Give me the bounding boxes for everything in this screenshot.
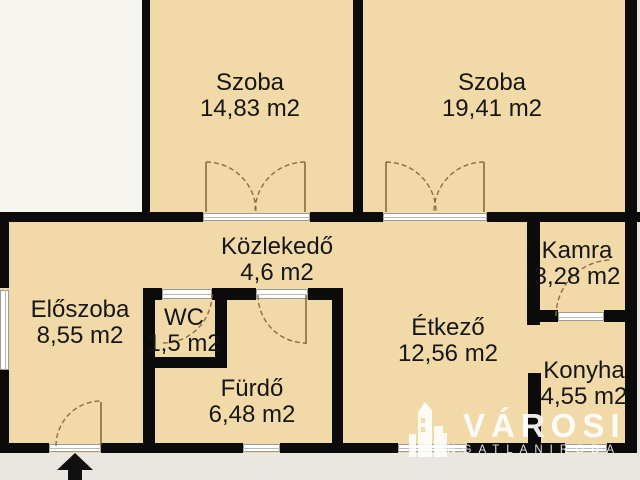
room-label-kozlekedo: Közlekedő 4,6 m2 [221,234,333,286]
door-arc-entrance [56,401,101,446]
wall-furdo-top-a [227,288,256,300]
wall-main-bottom-a [0,443,49,453]
room-name: Kamra [534,238,621,264]
room-area: 12,56 m2 [398,341,498,367]
door-sill-wc [162,289,212,299]
wall-main-bottom-c [280,443,398,453]
wall-exterior-left-lower [0,370,9,453]
room-area: 14,83 m2 [200,96,300,122]
exterior-area-bottom [0,453,640,480]
wall-exterior-left-of-szoba1 [142,0,150,222]
room-area: 19,41 m2 [442,96,542,122]
room-label-szoba1: Szoba 14,83 m2 [200,70,300,122]
door-sill-furdo [256,289,308,299]
wall-kamra-bottom-b [604,310,625,322]
room-area: 3,28 m2 [534,264,621,290]
room-area: 4,6 m2 [221,260,333,286]
floorplan: Szoba 14,83 m2 Szoba 19,41 m2 Közlekedő … [0,0,640,480]
room-name: Közlekedő [221,234,333,260]
room-label-eloszoba: Előszoba 8,55 m2 [31,297,130,349]
room-name: Étkező [398,315,498,341]
wall-furdo-etkezo-divider [332,288,343,445]
wall-exterior-left-upper [0,212,9,288]
room-label-furdo: Fürdő 6,48 m2 [209,376,296,428]
door-sill-entrance [49,444,101,452]
door-sill-kamra [558,312,604,321]
door-sill-szoba1 [203,213,310,221]
wall-wc-bottom [143,357,227,368]
door-arc-szoba1-left [206,162,256,212]
room-label-wc: WC 1,5 m2 [147,305,220,357]
exterior-area-top-left [0,0,142,212]
room-name: Szoba [442,70,542,96]
watermark-brand: VÁROSI [463,407,626,445]
room-name: WC [147,305,220,331]
room-name: Előszoba [31,297,130,323]
room-label-etkezo: Étkező 12,56 m2 [398,315,498,367]
room-name: Fürdő [209,376,296,402]
wall-wc-top-a [143,288,162,300]
room-label-szoba2: Szoba 19,41 m2 [442,70,542,122]
window-eloszoba [0,290,9,370]
room-area: 8,55 m2 [31,323,130,349]
door-arc-furdo [258,295,306,343]
room-name: Szoba [200,70,300,96]
wall-kamra-bottom-a [527,310,558,322]
wall-furdo-top-b [308,288,343,300]
room-area: 1,5 m2 [147,331,220,357]
wall-wc-top-b [212,288,227,300]
wall-main-bottom-b [101,443,243,453]
door-sill-szoba2 [383,213,487,221]
wall-between-szoba-rooms [353,0,363,213]
room-label-konyha: Konyha 4,55 m2 [541,358,628,410]
room-area: 6,48 m2 [209,402,296,428]
door-arc-szoba1-right [255,162,305,212]
door-arc-szoba2-right [434,162,484,212]
wall-main-top-a [0,212,203,222]
room-label-kamra: Kamra 3,28 m2 [534,238,621,290]
wall-main-top-c [487,212,640,222]
wall-main-top-b [310,212,383,222]
room-name: Konyha [541,358,628,384]
watermark-subtitle: INGATLANIRODA [437,444,621,456]
door-arc-szoba2-left [386,162,436,212]
window-furdo [243,444,280,452]
